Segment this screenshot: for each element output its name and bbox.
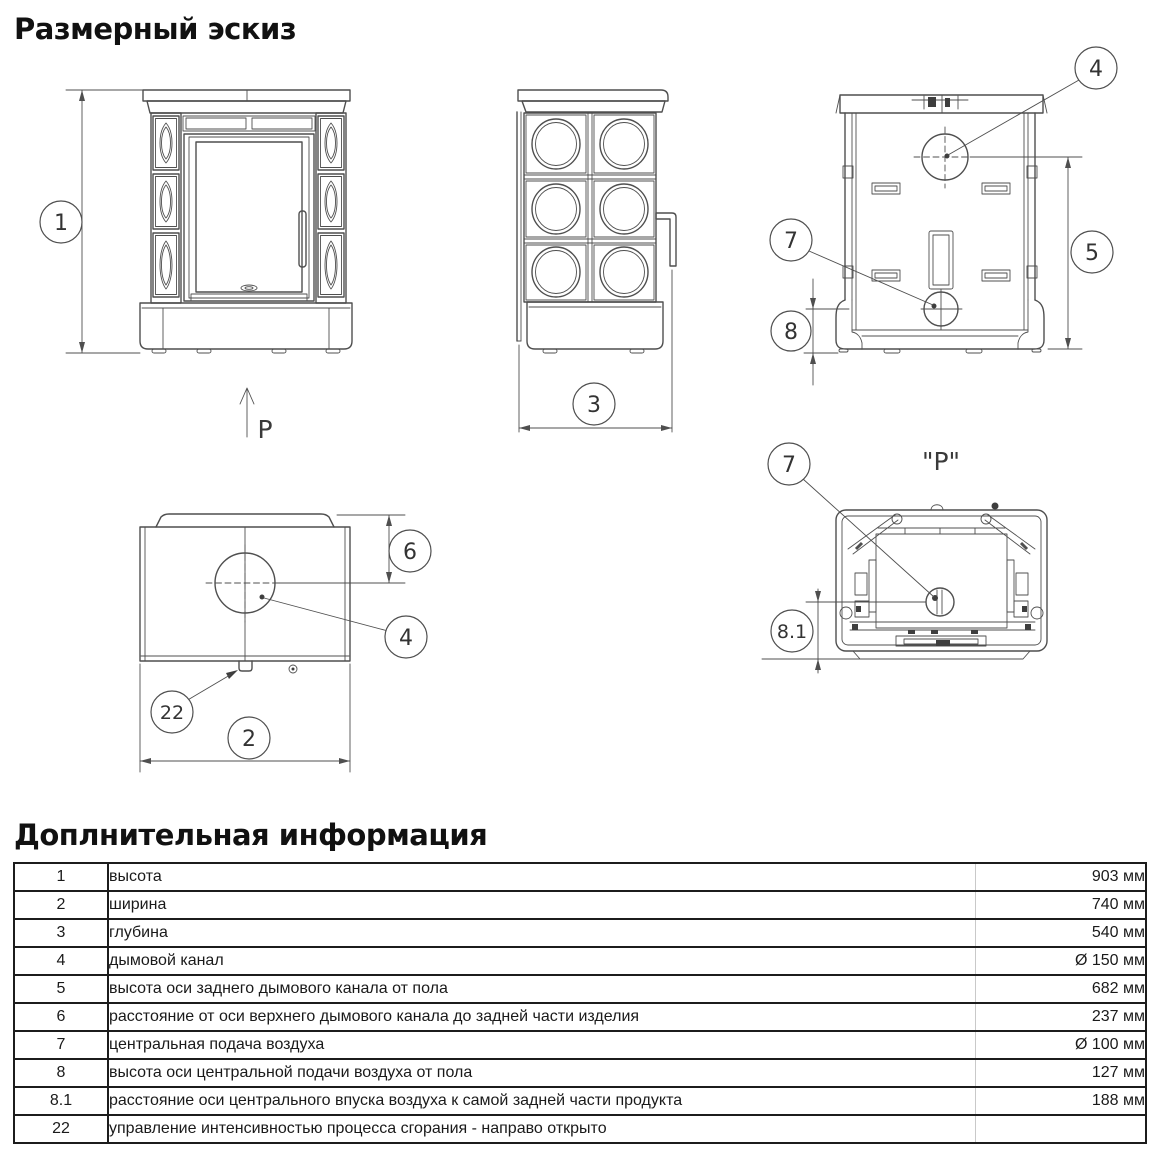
combustion-control: 22: [151, 661, 297, 733]
dimension-height: 1: [40, 90, 143, 353]
dimension-flue-offset: 6: [337, 515, 431, 583]
callout-7-label: 7: [784, 229, 798, 254]
callout-5-label: 5: [1085, 241, 1099, 266]
callout-air-inlet-bottom: 7: [768, 443, 934, 597]
table-row: 5 высота оси заднего дымового канала от …: [14, 975, 1146, 1003]
door-handle-side: [656, 213, 676, 266]
side-tiles: [526, 115, 654, 300]
flue-collar-top: [912, 95, 968, 113]
info-title: Доплнительная информация: [14, 818, 487, 852]
air-valve-bottom: [926, 588, 954, 616]
table-row: 6 расстояние от оси верхнего дымового ка…: [14, 1003, 1146, 1031]
callout-1-label: 1: [54, 211, 68, 236]
callout-2-label: 2: [242, 727, 256, 752]
row-desc-cell: расстояние оси центрального впуска возду…: [108, 1087, 976, 1115]
row-value-cell: 740 мм: [976, 891, 1147, 919]
air-inlet-opening: [921, 289, 962, 330]
table-row: 1 высота 903 мм: [14, 863, 1146, 891]
callout-22-label: 22: [160, 702, 184, 724]
front-right-tiles: [318, 116, 344, 297]
front-left-tiles: [153, 116, 179, 297]
row-value-cell: 237 мм: [976, 1003, 1147, 1031]
row-number-cell: 22: [14, 1115, 108, 1143]
top-view: 6 4 22 2: [140, 514, 431, 772]
back-view: 5 8 4 7: [770, 47, 1117, 385]
row-number-cell: 6: [14, 1003, 108, 1031]
row-desc-cell: управление интенсивностью процесса сгора…: [108, 1115, 976, 1143]
row-value-cell: Ø 100 мм: [976, 1031, 1147, 1059]
callout-7-bottom-label: 7: [782, 453, 796, 478]
callout-flue: 4: [948, 47, 1117, 155]
table-row: 7 центральная подача воздуха Ø 100 мм: [14, 1031, 1146, 1059]
table-row: 8 высота оси центральной подачи воздуха …: [14, 1059, 1146, 1087]
row-value-cell: 127 мм: [976, 1059, 1147, 1087]
info-table: 1 высота 903 мм 2 ширина 740 мм 3 глубин…: [13, 862, 1147, 1144]
p-view-label: "P": [922, 447, 960, 476]
callout-6-label: 6: [403, 540, 417, 565]
page: Размерный эскиз: [0, 0, 1161, 1158]
dimension-air-offset: 8.1: [762, 589, 926, 673]
row-value-cell: 540 мм: [976, 919, 1147, 947]
front-view: 1 P: [40, 90, 352, 444]
row-number-cell: 4: [14, 947, 108, 975]
brand-logo: [241, 285, 257, 291]
row-number-cell: 8: [14, 1059, 108, 1087]
p-direction-label: P: [257, 415, 272, 444]
row-number-cell: 7: [14, 1031, 108, 1059]
callout-8-1-label: 8.1: [777, 621, 807, 643]
row-desc-cell: высота оси центральной подачи воздуха от…: [108, 1059, 976, 1087]
row-value-cell: 682 мм: [976, 975, 1147, 1003]
air-grill: [183, 116, 315, 131]
front-base: [140, 303, 352, 353]
row-number-cell: 8.1: [14, 1087, 108, 1115]
dimensional-sketch: 1 P: [0, 0, 1161, 800]
row-desc-cell: ширина: [108, 891, 976, 919]
row-value-cell: Ø 150 мм: [976, 947, 1147, 975]
callout-flue-top: 4: [264, 598, 427, 658]
stove-door: [184, 134, 314, 301]
flue-opening: [914, 127, 976, 188]
row-desc-cell: высота: [108, 863, 976, 891]
row-value-cell: 188 мм: [976, 1087, 1147, 1115]
table-row: 22 управление интенсивностью процесса сг…: [14, 1115, 1146, 1143]
table-row: 4 дымовой канал Ø 150 мм: [14, 947, 1146, 975]
callout-4-top-label: 4: [399, 626, 413, 651]
table-row: 3 глубина 540 мм: [14, 919, 1146, 947]
callout-8-label: 8: [784, 320, 798, 345]
row-desc-cell: высота оси заднего дымового канала от по…: [108, 975, 976, 1003]
row-value-cell: 903 мм: [976, 863, 1147, 891]
row-desc-cell: центральная подача воздуха: [108, 1031, 976, 1059]
callout-4-label: 4: [1089, 57, 1103, 82]
row-value-cell: [976, 1115, 1147, 1143]
row-desc-cell: дымовой канал: [108, 947, 976, 975]
row-number-cell: 3: [14, 919, 108, 947]
row-number-cell: 1: [14, 863, 108, 891]
p-direction-arrow: P: [240, 388, 273, 444]
side-view: 3: [517, 90, 676, 432]
callout-air-inlet: 7: [770, 219, 933, 305]
dimension-air-height: 8: [771, 279, 849, 385]
bottom-p-view: "P": [762, 443, 1047, 673]
callout-3-label: 3: [587, 393, 601, 418]
table-row: 8.1 расстояние оси центрального впуска в…: [14, 1087, 1146, 1115]
row-desc-cell: глубина: [108, 919, 976, 947]
row-desc-cell: расстояние от оси верхнего дымового кана…: [108, 1003, 976, 1031]
table-row: 2 ширина 740 мм: [14, 891, 1146, 919]
row-number-cell: 5: [14, 975, 108, 1003]
row-number-cell: 2: [14, 891, 108, 919]
dimension-depth: 3: [519, 270, 672, 432]
